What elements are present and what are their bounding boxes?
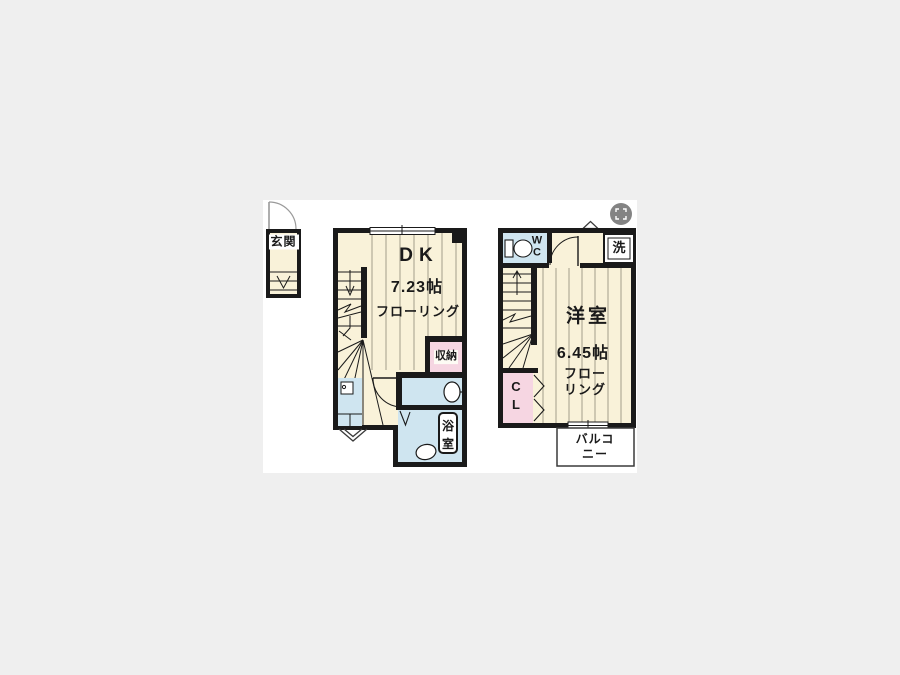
toilet-icon <box>505 240 532 257</box>
laundry-label: 洗 <box>612 240 625 256</box>
vent-marker-icon <box>583 222 598 229</box>
western-room-size-label: 6.45帖 <box>557 344 609 364</box>
western-room-flooring-label: フローリング <box>559 366 611 399</box>
entrance-door-swing-icon <box>269 202 296 229</box>
western-room-label: 洋室 <box>566 305 610 329</box>
floor1-stair-wall <box>361 267 367 338</box>
floor2-stair-wall <box>531 268 537 345</box>
page: { "palette":{ "background":"#efefef", "p… <box>0 0 900 675</box>
entrance-block <box>266 202 301 298</box>
bathroom-wall-top <box>396 405 467 410</box>
pillar-icon <box>452 233 462 243</box>
wc-wall-right <box>547 233 552 263</box>
bathroom-label: 浴 室 <box>438 412 458 454</box>
washroom-wall-top <box>396 372 467 378</box>
dk-flooring-label: フローリング <box>376 304 460 320</box>
fullscreen-expand-button[interactable] <box>610 203 632 225</box>
closet-wall-top <box>498 368 538 373</box>
storage-label: 収納 <box>434 350 458 364</box>
floor1-window-icon <box>370 225 435 235</box>
floorplan-image: 玄関 DK 7.23帖 フローリング 収納 浴 室 W C 洗 洋室 6.45帖… <box>263 200 637 473</box>
dk-room-label: DK <box>399 244 438 268</box>
entrance-label: 玄関 <box>268 235 298 250</box>
fullscreen-expand-icon <box>615 208 627 220</box>
storage-wall-top <box>425 336 467 342</box>
wc-label: W C <box>532 235 542 258</box>
balcony-label: バルコニー <box>574 432 616 462</box>
closet-label: C L <box>511 378 520 414</box>
entry-arrow-icon <box>339 429 367 441</box>
floor2-wall-segment-left <box>498 263 549 268</box>
dk-size-label: 7.23帖 <box>391 278 443 298</box>
